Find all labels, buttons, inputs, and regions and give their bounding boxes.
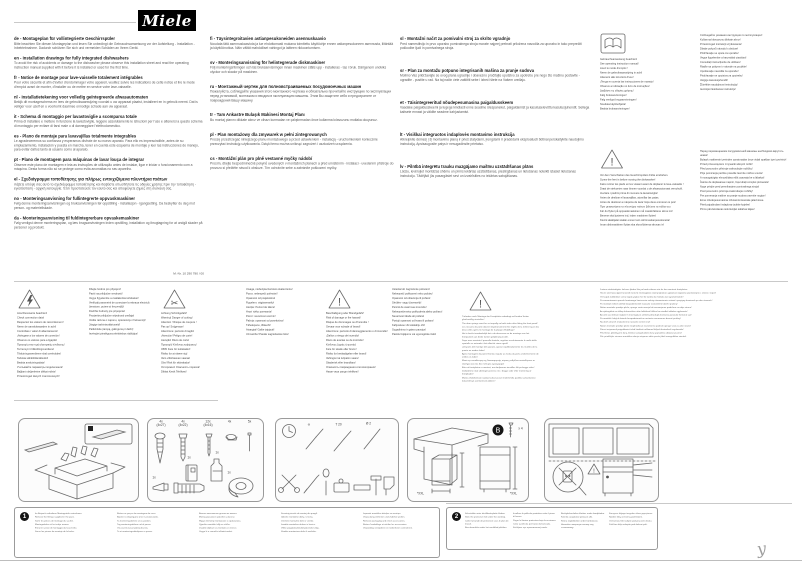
tools-illustration [276,419,398,501]
entry-body: Pred namestitvijo in prvo uporabo pomiva… [400,42,590,51]
notice-line: Nevarnost škode ali požara! [392,315,460,319]
notice-line: Înainte de deplasarea mașinii, înșurubaț… [700,181,790,185]
miele-logo: Miele [138,10,196,31]
notice-line: Após montagem do painel frontal, regular… [462,352,540,358]
notice-line: Før du flytter på oppvaskmaskinen må mas… [600,210,696,214]
notice-line: Przestrzegać danych znamionowych! [17,375,87,379]
parts-illustration [148,419,263,501]
notice-line: Uwaga, niebezpieczeństwo skaleczenia! [246,288,324,292]
language-entry: ru - Монтажный чертеж для полновстраивае… [210,84,394,103]
page-bottom-rule [0,560,802,561]
notice-line: Ta ut monteringsdetaljerna ur påsen. [117,530,193,533]
notice-line: Pēc priekšējās virsmas montāžas durvju a… [600,335,788,338]
entry-body: Bitte beachten Sie diesen Montageplan un… [14,42,204,51]
entry-body: Noudata tätä asennuskaaviota ja lue ehdo… [210,42,394,51]
notice-line: Осторожно! Опасность порезов! [161,366,245,370]
notice-line: Опасность повреждения или возгорания! [326,366,390,370]
entry-body: Observe este plano de montagem e leia as… [14,163,204,172]
notice-line: Figyelem: vágásveszély! [246,302,324,306]
notice-line: Vegye figyelembe a használati utasítást! [700,57,790,61]
notice-line: Sérülés- vagy tűzveszély! [392,302,460,306]
entry-title: el - Σχεδιάγραμμα τοποθέτησης για πλήρως… [14,177,204,182]
entry-title: de - Montageplan für vollintegrierte Ges… [14,36,204,41]
notice-line: Nebezpečenstvo poškodenia alebo požiaru! [392,311,460,315]
notice-line: Bulaşık makinesini yerinden oynatmadan ö… [700,158,790,162]
notice-line: Coller la bande de protection sous le pl… [465,519,509,525]
notice-line: Atenție: Pericol de tăiere! [246,306,324,310]
material-number: M.-Nr. 10 290 780 / 00 [104,268,204,286]
notice-line: Kierrä säätöjalat sisään ennen kuin siir… [600,219,696,223]
notice-line: Gevaar voor schade of brand! [326,326,390,330]
language-entry: da - Monteringsanvisning til fuldintegre… [14,215,204,230]
entry-body: Пожалуйста, соблюдайте указания этого мо… [210,90,394,103]
language-entry: fr - Notice de montage pour lave-vaissel… [14,75,204,90]
notice-line: Κίνδυνος ζημιάς ή φωτιάς! [326,344,390,348]
entry-body: Lūdzu, ievērojiet montāžas shēmu un pirm… [400,170,590,179]
entry-body: Vaadake paigaldusskeemi ja lugege kindla… [400,106,590,115]
svg-text:!: ! [479,299,482,311]
language-entry: no - Monteringsanvisning for fullintegre… [14,196,204,211]
notice-line: Προσοχή! Κίνδυνος κοψίματος! [161,344,245,348]
notice-line: Risco de avarias ou de incêndio! [326,339,390,343]
notice-line: Πριν μετακινήσετε το πλυντήριο πιάτων βι… [600,206,696,210]
entry-body: Molimo Vas pridržavajte se ovog plana ug… [400,74,590,83]
notice-line: Muista ehdottomasti säätää luukun jouset… [462,376,540,382]
notice-line: Türfedern nach Montage der Frontplatte u… [462,315,540,321]
entry-title: fr - Notice de montage pour lave-vaissel… [14,75,204,80]
entry-body: Bekijk dit montageschema en lees de gebr… [14,101,204,110]
notice-line: Pridržavajte se uputa za uporabu! [700,52,790,56]
notice-line: Antes de deslocar a máquina de lavar loi… [600,201,696,205]
language-entry: it - Schema di montaggio per lavastovigl… [14,114,204,129]
notice-line: Opasnost od oštećenja ili požara! [392,297,460,301]
notice-line: Gebrauchsanweisung beachten! [600,58,696,62]
notice-line: Διαβάστε τις οδηγίες χρήσης! [600,90,696,94]
notice-line: Noudata käyttöohjetta! [600,103,696,107]
parts-panel: 4x (4x27) 4x (4x22) 12x (4x16) 4x 5x 1x … [147,418,264,502]
svg-text:!: ! [338,297,341,309]
notice-line: Išimkite montavimo dalis iš maišelio. [281,530,357,533]
entry-body: Prima di installare e mettere in funzion… [14,120,204,129]
entry-title: sl - Montažni načrt za pomivalni stroj z… [400,36,590,41]
notice-line: Provjerite priključne vrijednosti uređaj… [89,314,161,318]
notice-line: Vor dem Verschieben des Geschirrspülers … [600,174,696,178]
notice-line: Prieš pajudindami indaplovę įsukite koje… [700,203,790,207]
notice-line: Nebezpečí poškození nebo požáru! [392,293,460,297]
language-entry: lt - Visiškai integruotos indaplovės mon… [400,132,590,147]
notice-line: Zaščitno folijo nalepite pod delovni pul… [609,523,653,526]
notice-line: Observe a indicação no livro de instruçõ… [600,85,696,89]
niche-illustration: B [408,419,528,501]
notice-line: Atsargiai! Galite įsipjauti! [246,329,324,333]
notice-line: Usterka lub zagrożenie pożarem! [392,288,460,292]
divider-right [446,503,792,504]
notice-line: Enne nõudepesumasina nihutamist keerake … [700,199,790,203]
manual-icon [600,33,626,59]
feet-notice-right: Перед перемещением посудомоечной машины … [700,150,790,275]
notice-line: Dbejte pokynů návodu k obsluze! [700,48,790,52]
notice-line: Tarkista sähköliitäntätiedot! [17,357,87,361]
notice-line: Observe os valores para a ligação! [17,339,87,343]
notice-line: The door springs must be set equally on … [462,322,540,325]
notice-line: Følg bruksanvisningen! [600,94,696,98]
language-entry: de - Montageplan für vollintegrierte Ges… [14,36,204,51]
notice-line: Antes de deslizar el lavavajillas, atorn… [600,197,696,201]
notice-line: ¡Atención! Peligro de corte! [161,335,245,339]
notice-line: Beakta bruksanvisningen! [600,108,696,112]
entry-title: et - Täisintegreeritud nõudepesumasina p… [400,100,590,105]
notice-line: Paziti na priključne vrednosti! [89,293,161,297]
notice-line: Dopo aver montato il pannello frontale, … [462,339,540,345]
entry-title: cs - Montážní plán pro plně vestavné myč… [210,156,394,161]
tools-panel: ⊖ T 20 Ø 2 [275,418,399,502]
notice-line: Pažnja: opasnost od posekotina! [246,320,324,324]
notice-line: Перед перемещением посудомоечной машины … [700,150,790,158]
notice-line: Avvitare i piedini prima di muovere la l… [600,192,696,196]
notice-line: Pericol de avarii sau incendiu! [392,306,460,310]
notice-line: Ta hensyn til tilkoblingsverdiene! [17,348,87,352]
notice-line: Het is beslist noodzakelijk dat u de deu… [462,332,540,338]
notice-line: Sacar las piezas de montaje de la bolsa. [35,530,111,533]
notice-line: OBS! Fare for kuttskader! [161,348,245,352]
notice-line: Pegar la lámina protectora bajo la encim… [513,519,557,522]
language-entry: et - Täisintegreeritud nõudepesumasina p… [400,100,590,115]
notice-line: Varo viiltohaavan vaaraa! [161,357,245,361]
entry-body: Λάβετε υπόψη σας αυτό το σχεδιάγραμμα το… [14,183,204,192]
language-entry: es - Plano de montaje para lavavajillas … [14,133,204,152]
notice-line: Risque de dommages ou d'incendie ! [326,321,390,325]
notice-line: Verpakking verwijderen en toebehoren con… [363,527,435,530]
notice-line: Risk of damage or fire hazard! [326,317,390,321]
svg-text:✂: ✂ [171,298,179,308]
notice-line: Anschlusswerte beachten! [17,312,87,316]
notice-line: Lisez le mode d'emploi ! [600,67,696,71]
notice-line: Vahingon tai tulipalon vaara! [326,357,390,361]
notice-line: Dbejte hodnot pro připojení! [89,288,161,292]
notice-line: Pozor: nevarnost ureznin! [246,315,324,319]
language-entry: el - Σχεδιάγραμμα τοποθέτησης για πλήρως… [14,177,204,192]
notice-line: Stick the protective foil under the work… [465,516,509,519]
notice-line: Dikkat Kesik Tehlikesi! [161,371,245,375]
niche-panel: B x 4 *XXL *XXL [407,418,529,502]
notice-line: Faire rentrer les pieds en les vissant a… [600,183,696,187]
language-entry: en - Installation drawings for fully int… [14,55,204,70]
language-entry: sr - Plan za montažu potpuno integrisani… [400,68,590,83]
language-entry: cs - Montážní plán pro plně vestavné myč… [210,156,394,171]
entry-body: To avoid the risk of accidents or damage… [14,62,204,71]
notice-line: Pozor, nebezpečí pořezání! [246,293,324,297]
notice-line: Opasnost od posjekotina! [246,297,324,301]
springs-warning-right: Justera nödvändigtvis luckans fjädrar li… [600,288,788,390]
notice-line: ¡Aténgase a los valores de conexión! [17,335,87,339]
notice-line: Μετά την τοποθέτηση της διακοσμητικής πό… [462,359,540,365]
step-number-badge: 2 [452,512,461,521]
notice-line: Achtung Schnittgefahr! [161,312,245,316]
notice-line: Pirms pārvietošanas ieskrūvējiet iekārta… [700,208,790,212]
notice-line: Sugadinimo ir gaisro pavojus! [392,329,460,333]
notice-line: Vegye ki a szerelési alkatrészeket. [199,530,275,533]
notice-line: ¡Después del montaje del aparato, ajusta… [462,346,540,352]
entry-title: sv - Monteringsanvisning för helintegrer… [210,60,394,65]
entry-body: Följ monteringsritningen och läs bruksan… [210,66,394,75]
notice-line: Noge privijte pred premikanjem pomivalne… [700,185,790,189]
notice-line: Fare for skade eller brann! [326,348,390,352]
notice-line: Attention ! Risque de coupure ! [161,321,245,325]
notice-line: Pred posunutím prístroja zaskrutkujte no… [700,190,790,194]
notice-line: Beschädigung oder Brandgefahr! [326,312,390,316]
notice-line: Respectez les valeurs de raccordement ! [17,321,87,325]
entry-body: Bu montaj planını dikkate alınız ve ciha… [210,118,394,122]
entry-title: lt - Visiškai integruotos indaplovės mon… [400,132,590,137]
electrical-warning-icon [17,288,42,315]
notice-line: Hrozí riziko porezania! [246,311,324,315]
entry-title: pt - Plano de montagem para máquinas de … [14,157,204,162]
notice-line: Risiko for at skære sig! [161,353,245,357]
notice-line: Les ressorts de porte doivent impérative… [462,325,540,331]
cutting-warning-icon: ✂ [162,288,187,315]
print-mark: y [756,538,768,558]
unpacking-panel [18,418,139,502]
entry-body: Prosím, dbejte bezpodmínečně pokynů uved… [210,162,394,171]
notice-line: Tilslutningsværdierne skal overholdes! [17,353,87,357]
notice-line: ¡Tenga en cuenta las instrucciones de ma… [600,81,696,85]
notice-line: Riaďte sa pokynmi v návode na použitie! [700,66,790,70]
notice-line: Benene skal justeres ind, inden maskinen… [600,215,696,219]
divider-left [14,400,218,401]
language-entry: lv - Pilnībā integrētu trauku mazgājamo … [400,164,590,179]
notice-line: Consultați instrucțiunile de utilizare! [700,61,790,65]
notice-line: See operating instruction manual! [600,63,696,67]
notice-line: Przestrzegać instrukcji użytkowania! [700,43,790,47]
notice-line: Screw the feet in before moving the dish… [600,179,696,183]
notice-line: Warning! Danger of cutting! [161,317,245,321]
notice-line: Attenersi alle istruzioni d'uso! [600,76,696,80]
feet-notice-left: Vor dem Verschieben des Geschirrspülers … [600,174,696,282]
notice-line: Kahjustuse või tulekahju oht! [392,324,460,328]
entry-title: ru - Монтажный чертеж для полновстраивае… [210,84,394,89]
notice-line: Risiko for beskadigelse eller brand! [326,353,390,357]
entry-title: nl - Installatietekening voor volledig g… [14,94,204,99]
notice-line: Beschermfolie onder het werkblad plakken… [465,526,509,529]
notice-line: Dørfjedrene skal ubetinget justeres ens … [462,370,540,376]
language-entry: fi - Täysintegroitavien astianpesukoneid… [210,36,394,51]
notice-line: Vegye figyelembe a csatlakozási értékeke… [89,297,161,301]
unpacking-illustration [19,419,138,501]
svg-text:!: ! [610,157,613,169]
springs-warning-icon: ! [468,290,493,317]
notice-line: Pridržavajte se uputstva za upotrebu! [700,75,790,79]
notice-line: Kullanma kılavuzunu dikkate alınız! [700,39,790,43]
entry-title: es - Plano de montaje para lavavajillas … [14,133,204,138]
socket-warning-panel: ! [544,418,659,502]
niche-badge: B [496,428,501,435]
notice-line: Controllare i valori di allacciamento! [17,330,87,334]
notice-line: Pre pomeranja mašine za pranje sudova za… [700,194,790,198]
notice-line: Atenção! Risco de corte! [161,339,245,343]
notice-line: Hasar veya yangın tehlikesi! [326,371,390,375]
notice-line: Check connection data! [17,317,87,321]
notice-line: Ievērojiet lietošanas instrukciju! [700,88,790,92]
cutting-warning-right: Uwaga, niebezpieczeństwo skaleczenia!Poz… [246,288,324,387]
entry-title: fi - Täysintegroitavien astianpesukoneid… [210,36,394,41]
notice-line: Prije pomicanja perilice posuđa zavrnite… [700,172,790,176]
header-rule [14,22,136,23]
notice-line: Учитывайте параметры подключения! [17,366,87,370]
notice-line: Beakta anslutningsdata! [17,362,87,366]
notice-line: Наклейте защитную пленку под столешницу. [561,523,605,529]
notice-line: Incollare la pellicola protettiva sotto … [513,512,557,518]
notice-line: Järgige tarbimisväärtuseid! [89,323,161,327]
step-box-1: 1 Im Beipack enthaltene Montageteile ent… [14,507,440,558]
entry-title: no - Monteringsanvisning for fullintegre… [14,196,204,201]
notice-line: Προσοχή στην τιμή ηλεκτρικής σύνδεσης! [17,344,87,348]
notice-line: Draai de stelvoeten naar binnen voordat … [600,188,696,192]
language-entry: pt - Plano de montagem para máquinas de … [14,157,204,172]
notice-line: Tähelepanu, lõikeoht! [246,324,324,328]
notice-line: Przed przesunięciem zmywarki wkręcić nóż… [700,163,790,167]
entry-body: Følg venligst denne monteringsplan, og l… [14,222,204,231]
entry-title: tr - Tam Ankastre Bulaşık Makinesi Monta… [210,112,394,117]
notice-line: Před posunutím přístroje zašroubujte nož… [700,167,790,171]
section-divider-top [14,281,788,282]
notice-line: Pas op! Snijgevaar! [161,326,245,330]
language-entry: pl - Plan montażowy dla zmywarek w pełni… [210,132,394,147]
notice-line: Upoštevajte navodila za uporabo! [700,70,790,74]
notice-line: Attenzione: pericolo di danneggiamento o… [326,330,390,334]
entry-body: Proszę przestrzegać niniejszego planu mo… [210,138,394,147]
notice-line: Verificați parametrii de conectare la re… [89,302,161,310]
notice-line: Dodržte hodnoty pre pripojenie! [89,310,161,314]
entry-title: da - Monteringsanvisning til fuldintegre… [14,215,204,220]
notice-line: Žiūrėkite naudojimosi instrukciją! [700,84,790,88]
notice-line: Κολλήστε την προστατευτική ταινία. [513,526,557,529]
notice-line: Järgige kasutusjuhendit! [700,79,790,83]
entry-title: pl - Plan montażowy dla zmywarek w pełni… [210,132,394,137]
language-entry: tr - Tam Ankastre Bulaşık Makinesi Monta… [210,112,394,123]
entry-title: it - Schema di montaggio per lavastovigl… [14,114,204,119]
step-number-badge: 1 [20,512,29,521]
notice-line: Skaderisk eller brandfara! [326,362,390,366]
entry-title: en - Installation drawings for fully int… [14,55,204,60]
notice-line: Patikrinkite įtampą, galingumą ir dažnį! [89,328,161,332]
notice-line: Uzmanību! Pastāv sagriešanās risks! [246,333,324,337]
notice-line: Obs! Risk för skärskador! [161,362,245,366]
notice-line: Соблюдайте указания инструкции по эксплу… [700,34,790,38]
notice-line: Neem de aansluitwaarden in acht! [17,326,87,330]
notice-line: Følg venligst brugsanvisningen! [600,99,696,103]
entry-body: Atkreipkite dėmesį į šį montavimo planą … [400,138,590,147]
fire-warning-right: Usterka lub zagrożenie pożarem!Nebezpečí… [392,288,460,387]
step-box-2: 2 Schutzfolie unter die Arbeitsplatte kl… [446,507,658,550]
entry-title: lv - Pilnībā integrētu trauku mazgājamo … [400,164,590,169]
language-entry: nl - Installatietekening voor volledig g… [14,94,204,109]
notice-line: A mosogatógép elmozdítása előtt csavarja… [700,176,790,180]
entry-body: Pour votre sécurité et afin d'éviter d'e… [14,81,204,90]
notice-line: Innan diskmaskinen flyttas ska skruvfött… [600,224,696,228]
entry-body: Le agradeceremos su confianza y esperamo… [14,140,204,153]
notice-line: Postoji opasnost od kvara ili požara! [392,320,460,324]
notice-line: Attenzione: pericolo di taglio! [161,330,245,334]
installation-sheet-page: { "header": {"logo_text": "Miele", "doc_… [0,0,802,567]
notice-line: Pastāv bojājumu vai ugunsgrēka risks! [392,333,460,337]
notice-line: Ochrannou fólii nalepte pod pracovní des… [609,519,653,522]
notice-line: Ievērojiet pieslēguma elektriskos rādītā… [89,332,161,336]
language-entry: sv - Monteringsanvisning för helintegrer… [210,60,394,75]
entry-title: sr - Plan za montažu potpuno integrisani… [400,68,590,73]
notice-line: Vodite računa o naponu, opterećenju i fr… [89,319,161,323]
manual-notice-right: Соблюдайте указания инструкции по эксплу… [700,34,790,151]
connection-warning-right: Dbejte hodnot pro připojení!Paziti na pr… [89,288,161,386]
fire-warning-icon: ! [327,288,352,315]
language-entry: sl - Montažni načrt za pomivalni stroj z… [400,36,590,51]
socket-warning-illustration: ! [545,419,658,501]
notice-line: Neem de gebruiksaanwijzing in acht! [600,72,696,76]
notice-line: Bağlantı değerlerine dikkat ediniz! [17,371,87,375]
entry-body: Følg denne monteringsanvisningen og bruk… [14,202,204,211]
warning-triangle-icon: ! [600,148,624,175]
notice-line: ¡Daños o riesgo de incendio! [326,335,390,339]
